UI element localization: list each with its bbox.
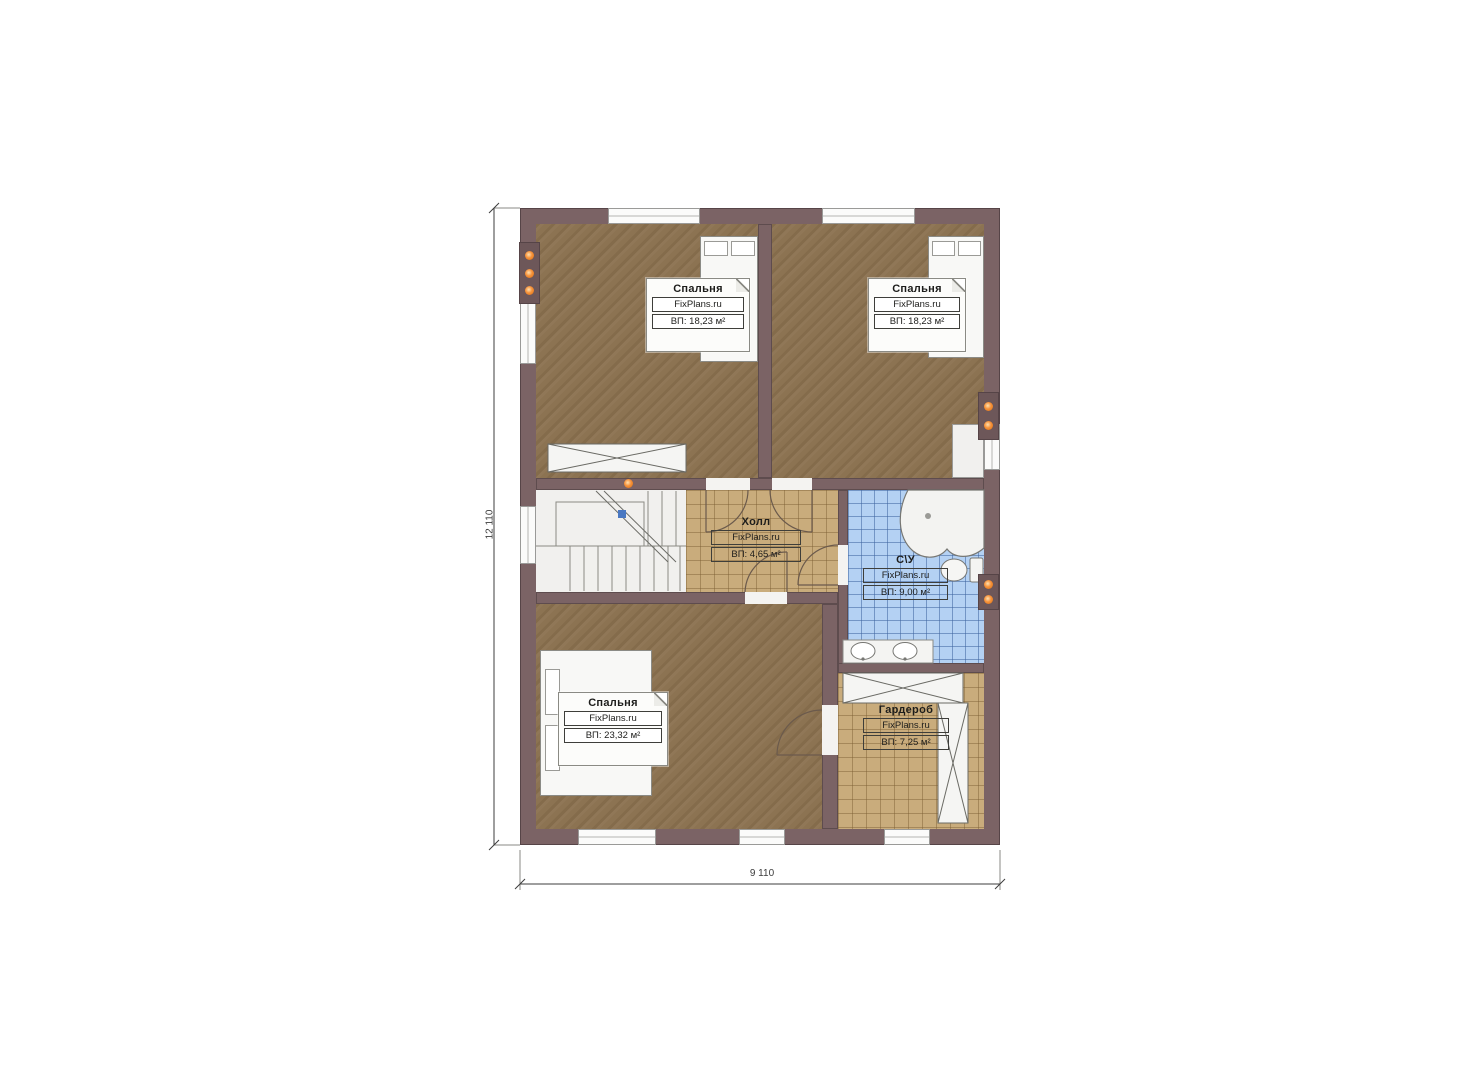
window-bottom-2 <box>739 829 785 845</box>
wall-hall-bedroom-bottom <box>536 592 838 604</box>
room-area: ВП: 18,23 м² <box>874 314 960 329</box>
room-area: ВП: 18,23 м² <box>652 314 744 329</box>
room-area: ВП: 4,65 м² <box>711 547 801 562</box>
pillow <box>958 241 981 256</box>
room-card-wardrobe: Гардероб FixPlans.ru ВП: 7,25 м² <box>858 704 954 762</box>
room-name: С\У <box>858 554 953 566</box>
dimension-width-label: 9 110 <box>738 868 786 879</box>
radiator-left-bedroom <box>519 242 540 304</box>
floor-staircase <box>536 490 686 592</box>
room-name: Холл <box>706 516 806 528</box>
dimension-height-label: 12 110 <box>485 505 496 545</box>
room-name: Спальня <box>647 279 749 295</box>
window-left-stairs <box>520 506 536 564</box>
radiator-dot <box>525 286 534 295</box>
wall-lamp-dot <box>624 479 633 488</box>
floor-plan-canvas: 12 110 9 110 Спальня FixPlans.ru ВП: 18,… <box>0 0 1474 1080</box>
wall-mid-horizontal <box>536 478 984 490</box>
window-bottom-1 <box>578 829 656 845</box>
room-area: ВП: 7,25 м² <box>863 735 949 750</box>
brand-label: FixPlans.ru <box>652 297 744 312</box>
room-name: Спальня <box>869 279 965 295</box>
room-area: ВП: 23,32 м² <box>564 728 662 743</box>
radiator-bathroom <box>978 574 999 610</box>
door-opening-wardrobe <box>822 705 838 755</box>
room-name: Спальня <box>559 693 667 709</box>
room-card-bedroom-top-left: Спальня FixPlans.ru ВП: 18,23 м² <box>646 278 750 352</box>
room-card-bedroom-top-right: Спальня FixPlans.ru ВП: 18,23 м² <box>868 278 966 352</box>
wall-between-top-bedrooms <box>758 224 772 478</box>
brand-label: FixPlans.ru <box>564 711 662 726</box>
room-card-bathroom: С\У FixPlans.ru ВП: 9,00 м² <box>858 554 953 614</box>
radiator-dot <box>984 595 993 604</box>
room-area: ВП: 9,00 м² <box>863 585 948 600</box>
room-card-hall: Холл FixPlans.ru ВП: 4,65 м² <box>706 516 806 576</box>
card-fold-corner <box>952 279 965 292</box>
window-bottom-3 <box>884 829 930 845</box>
room-name: Гардероб <box>858 704 954 716</box>
room-card-bedroom-bottom-left: Спальня FixPlans.ru ВП: 23,32 м² <box>558 692 668 766</box>
radiator-dot <box>984 580 993 589</box>
radiator-right-bedroom <box>978 392 999 440</box>
radiator-dot <box>525 251 534 260</box>
window-top-left <box>608 208 700 224</box>
card-fold-corner <box>654 693 667 706</box>
pillow <box>731 241 755 256</box>
brand-label: FixPlans.ru <box>863 568 948 583</box>
brand-label: FixPlans.ru <box>711 530 801 545</box>
door-opening-bedroom-top-left <box>706 478 750 490</box>
wall-bathroom-wardrobe <box>838 663 984 673</box>
door-opening-bedroom-bottom <box>745 592 787 604</box>
pillow <box>932 241 955 256</box>
radiator-dot <box>984 421 993 430</box>
window-left-bedroom <box>520 300 536 364</box>
card-fold-corner <box>736 279 749 292</box>
radiator-dot <box>525 269 534 278</box>
brand-label: FixPlans.ru <box>863 718 949 733</box>
door-opening-bedroom-top-right <box>772 478 812 490</box>
brand-label: FixPlans.ru <box>874 297 960 312</box>
door-opening-bathroom <box>838 545 848 585</box>
pillow <box>704 241 728 256</box>
radiator-dot <box>984 402 993 411</box>
window-top-right <box>822 208 915 224</box>
